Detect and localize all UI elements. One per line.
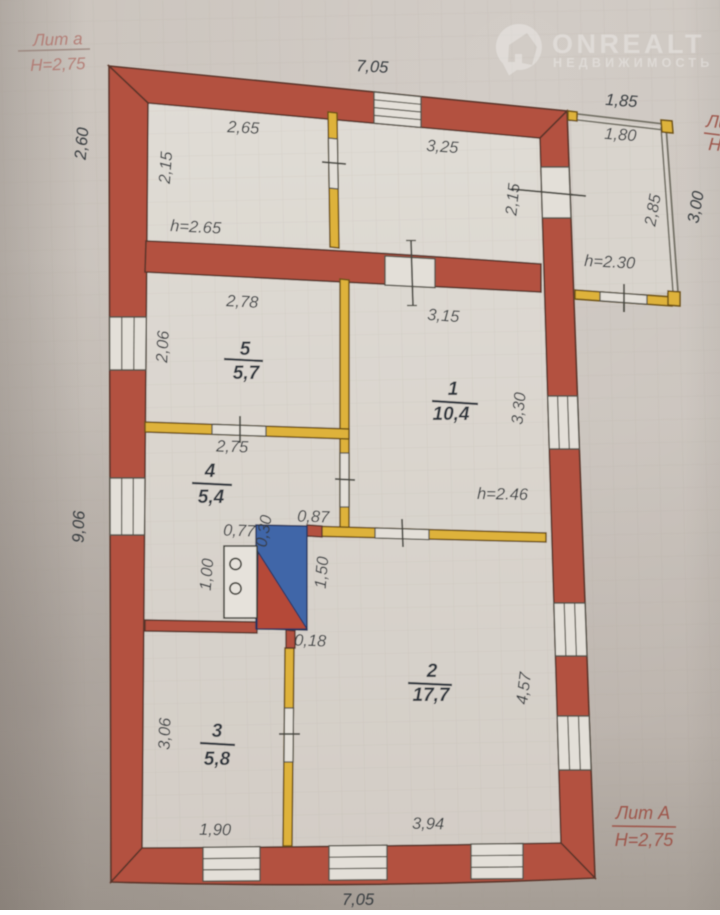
svg-text:5,7: 5,7 <box>233 363 261 384</box>
svg-text:1,00: 1,00 <box>197 557 218 591</box>
svg-text:1,80: 1,80 <box>604 125 638 145</box>
svg-text:h=2.46: h=2.46 <box>477 485 529 504</box>
svg-text:3: 3 <box>212 721 223 742</box>
svg-text:3,25: 3,25 <box>426 137 460 157</box>
svg-text:5,4: 5,4 <box>198 487 225 508</box>
svg-text:5,8: 5,8 <box>204 749 231 770</box>
svg-text:2,78: 2,78 <box>225 292 260 312</box>
svg-text:2,06: 2,06 <box>153 329 173 364</box>
svg-text:3,06: 3,06 <box>155 717 174 751</box>
svg-text:2,15: 2,15 <box>502 182 523 218</box>
svg-text:ONREALT: ONREALT <box>552 29 705 59</box>
svg-text:0,87: 0,87 <box>297 507 331 526</box>
svg-text:2,65: 2,65 <box>226 118 261 138</box>
svg-text:h=2.65: h=2.65 <box>170 217 223 238</box>
svg-text:2: 2 <box>426 661 438 682</box>
svg-text:2,75: 2,75 <box>215 437 250 456</box>
svg-text:7,05: 7,05 <box>356 57 390 77</box>
svg-text:1,50: 1,50 <box>312 555 333 589</box>
svg-text:5: 5 <box>240 339 251 360</box>
svg-text:1,85: 1,85 <box>605 91 639 111</box>
svg-text:10,4: 10,4 <box>433 404 470 425</box>
svg-text:3,94: 3,94 <box>412 815 444 834</box>
svg-text:7,05: 7,05 <box>342 891 375 909</box>
svg-text:2,60: 2,60 <box>72 126 93 161</box>
svg-text:0,77: 0,77 <box>223 521 257 540</box>
svg-text:Лит а: Лит а <box>32 29 83 50</box>
svg-text:4: 4 <box>204 461 216 482</box>
svg-text:0,18: 0,18 <box>294 631 328 650</box>
svg-text:НЕДВИЖИМОСТЬ: НЕДВИЖИМОСТЬ <box>553 56 713 70</box>
svg-text:1,90: 1,90 <box>199 821 232 840</box>
svg-text:Лит А: Лит А <box>615 803 670 823</box>
svg-text:1: 1 <box>448 379 459 400</box>
svg-text:h=2.30: h=2.30 <box>584 252 637 273</box>
svg-text:Н=2,7: Н=2,7 <box>708 134 720 157</box>
svg-text:9,06: 9,06 <box>69 510 88 544</box>
svg-text:17,7: 17,7 <box>413 685 451 706</box>
svg-text:Н=2,75: Н=2,75 <box>30 54 86 75</box>
svg-text:Н=2,75: Н=2,75 <box>615 830 675 850</box>
svg-text:2,15: 2,15 <box>156 150 176 185</box>
svg-text:3,15: 3,15 <box>427 306 461 326</box>
svg-text:3,30: 3,30 <box>508 391 529 426</box>
